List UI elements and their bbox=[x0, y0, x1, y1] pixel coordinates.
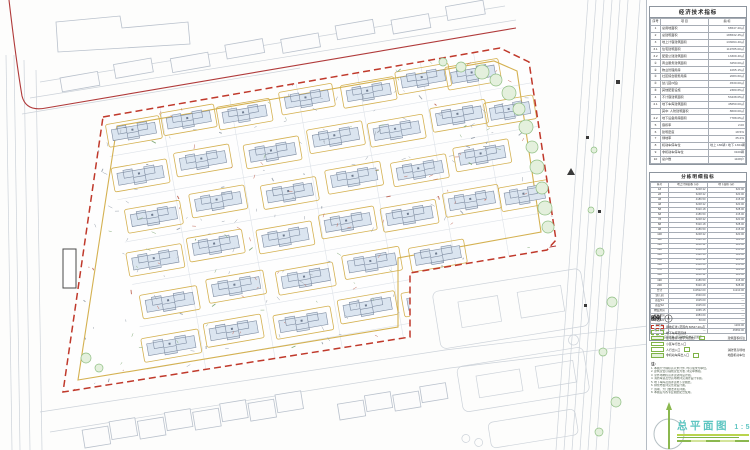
table-row: 6建筑密度18.5% bbox=[651, 129, 746, 136]
north-arrow-icon bbox=[664, 314, 673, 323]
legend-item-label: 消防登高场地 bbox=[728, 348, 745, 352]
detail-table-title: 分栋明细指标 bbox=[650, 173, 746, 182]
legend-item-label: 地面机动车位 bbox=[728, 353, 745, 357]
legend-item-label: 用地红线 (范围内 66547.20㎡) bbox=[666, 325, 705, 329]
sheet-title-text: 总平面图 bbox=[677, 420, 729, 432]
table-row: 其中: 人防建筑面积8600.00㎡ bbox=[651, 108, 746, 115]
scale-bar bbox=[677, 440, 749, 442]
legend-item-label: 住宅楼栋 (数字为层数) bbox=[666, 336, 695, 340]
legend-item-label: 小区车行出入口 bbox=[666, 342, 686, 346]
table-row: 1总用地面积66547.20㎡ bbox=[651, 25, 746, 32]
econ-table-title: 经济技术指标 bbox=[650, 7, 746, 18]
legend-symbol-icon bbox=[651, 330, 664, 335]
table-row: 10总户数1108户 bbox=[651, 156, 746, 163]
table-row: 8机动车停车位地上 186辆 / 地下 1364辆 bbox=[651, 143, 746, 150]
legend-title: 图例 bbox=[651, 315, 661, 322]
west-annex-building bbox=[63, 249, 76, 288]
title-block-panel: 经济技术指标 序号项 目指 标1总用地面积66547.20㎡2总建筑面积1865… bbox=[646, 0, 750, 450]
table-row: 4不计容建筑面积53438.05㎡ bbox=[651, 94, 746, 101]
table-row: 3.2配套公建建筑面积13309.40㎡ bbox=[651, 53, 746, 60]
legend-symbol-icon bbox=[684, 347, 690, 352]
site-plan-sheet: { "sheet": { "title": "总平面图", "scale": "… bbox=[0, 0, 750, 450]
table-row: ③社区综合服务用房2083.60㎡ bbox=[651, 74, 746, 81]
table-row: ②物业管理用房1065.15㎡ bbox=[651, 67, 746, 74]
econ-header-cell: 项 目 bbox=[661, 19, 709, 26]
legend-symbol-icon bbox=[651, 325, 664, 330]
econ-header-cell: 指 标 bbox=[709, 19, 746, 26]
econ-header-cell: 序号 bbox=[651, 19, 661, 26]
table-row: 3地上计容建筑面积133094.40㎡ bbox=[651, 39, 746, 46]
legend-symbol-icon bbox=[699, 336, 705, 341]
legend-item-label: 人行出入口 bbox=[666, 348, 680, 352]
detail-table: 栋号地上计容面积 (㎡)地下面积 (㎡)1#6248.32620.002#624… bbox=[650, 182, 746, 334]
legend-item-label: 地下车库范围线 bbox=[666, 331, 686, 335]
legend-symbol-icon bbox=[651, 336, 664, 341]
table-row: 5容积率2.00 bbox=[651, 122, 746, 129]
table-row: 3.1住宅建筑面积119785.00㎡ bbox=[651, 46, 746, 53]
table-row: 2总建筑面积186532.45㎡ bbox=[651, 32, 746, 39]
legend-item-label: 建筑面积标注 bbox=[728, 336, 745, 340]
legend-item: 非机动车库出入口地面机动车位 bbox=[649, 352, 747, 358]
title-underline bbox=[677, 434, 749, 436]
legend-symbol-icon bbox=[651, 342, 664, 347]
table-row: ⑤其他配套设施2380.65㎡ bbox=[651, 87, 746, 94]
sheet-title: 总平面图 1:500 bbox=[677, 418, 749, 442]
notes: 注: 1. 本图尺寸除标高以米计外, 均以毫米为单位。2. 建筑定位以轴线定位为… bbox=[651, 362, 747, 395]
table-row: 4.2地下设备用房面积7788.05㎡ bbox=[651, 115, 746, 122]
sheet-scale: 1:500 bbox=[734, 424, 750, 431]
site-plan-drawing bbox=[0, 0, 648, 450]
economic-indicator-table: 经济技术指标 序号项 目指 标1总用地面积66547.20㎡2总建筑面积1865… bbox=[649, 6, 747, 165]
legend-symbol-icon bbox=[651, 353, 664, 358]
title-underline-2 bbox=[677, 437, 739, 438]
legend-symbol-icon bbox=[651, 347, 664, 352]
legend-symbol-icon bbox=[693, 353, 699, 358]
econ-table: 序号项 目指 标1总用地面积66547.20㎡2总建筑面积186532.45㎡3… bbox=[650, 18, 746, 164]
table-row: ④幼儿园(9班)4530.00㎡ bbox=[651, 81, 746, 88]
adjacent-plot bbox=[432, 268, 606, 450]
note-line: 8. 本图应与各专业图纸配合使用。 bbox=[651, 391, 747, 394]
table-row: 7绿地率35.2% bbox=[651, 136, 746, 143]
table-row: ①商业服务建筑面积3250.00㎡ bbox=[651, 60, 746, 67]
table-row: 4.1地下车库建筑面积45650.00㎡ bbox=[651, 101, 746, 108]
legend-item: 住宅楼栋 (数字为层数)建筑面积标注 bbox=[649, 335, 747, 341]
legend: 图例 用地红线 (范围内 66547.20㎡)地下车库范围线住宅楼栋 (数字为层… bbox=[649, 313, 747, 358]
legend-item-label: 非机动车库出入口 bbox=[666, 353, 689, 357]
table-row: 9非机动车停车位3100辆 bbox=[651, 149, 746, 156]
